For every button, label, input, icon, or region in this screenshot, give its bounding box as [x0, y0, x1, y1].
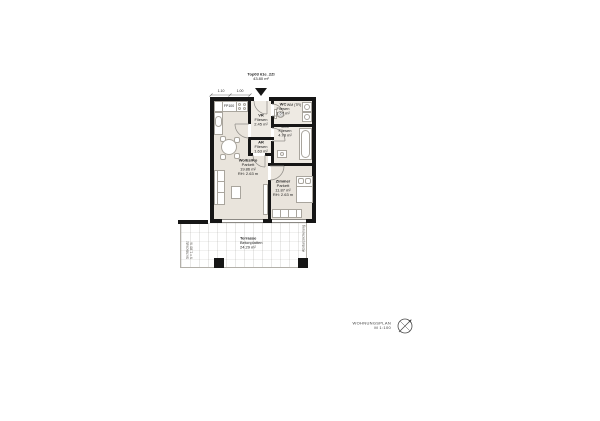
wall-right	[312, 97, 316, 223]
terrace-privacy-wall	[178, 220, 208, 224]
terrace-edge-bottom	[180, 267, 307, 268]
sofa-backrest-line	[217, 171, 218, 204]
wardrobe	[272, 209, 302, 218]
plan-title-area: 43.80 m²	[247, 77, 274, 82]
kitchen-counter-divider	[222, 101, 223, 112]
legend-scale: M 1:100	[352, 326, 391, 331]
floor-plan-canvas: Top03 61e_2Zi 43.80 m² 1.10 1.00 FP100	[0, 0, 600, 421]
room-label-zimmer: Zimmer Parkett 11.87 m² RH: 2.63 m	[273, 179, 293, 197]
terrace-edge-left	[180, 223, 181, 268]
cooktop-burner-icon	[238, 107, 241, 110]
annotation-line: Absturzsicherung	[302, 225, 306, 252]
room-area: 2.45 m²	[254, 122, 268, 127]
kitchen-unit-label: FP100	[224, 104, 234, 109]
sideboard	[263, 184, 268, 215]
dimension-label-1: 1.10	[218, 89, 225, 94]
room-height: RH: 2.63 m	[273, 193, 293, 198]
dining-chair	[220, 154, 226, 160]
sliding-door-zimmer	[272, 219, 306, 223]
wardrobe-divider	[280, 209, 281, 218]
kitchen-counter-divider	[236, 101, 237, 112]
wall-vr-left-upper	[248, 101, 251, 124]
bed-blanket-line	[297, 186, 312, 187]
room-area: 4.78 m²	[278, 133, 292, 138]
wall-bad-zimmer-divider	[268, 163, 316, 166]
wc-appliance-label: WM (TR)	[287, 103, 301, 108]
sliding-door-living	[222, 219, 263, 223]
sofa	[214, 170, 225, 205]
plan-title: Top03 61e_2Zi 43.80 m²	[247, 72, 274, 81]
cooktop-burner-icon	[243, 103, 246, 106]
room-area: 1.67 m²	[276, 111, 290, 116]
bathtub-inner	[301, 130, 310, 158]
room-label-terrasse: Terrasse Betonplatten 24.29 m²	[240, 236, 262, 250]
washbasin-drain-icon	[280, 152, 284, 156]
wardrobe-divider	[296, 209, 297, 218]
annotation-line: h = 1.80 m	[190, 241, 194, 259]
sofa-cushion-line	[218, 181, 224, 182]
room-area: 1.63 m²	[254, 149, 268, 154]
cooktop-burner-icon	[238, 103, 241, 106]
wall-bottom-c	[306, 219, 316, 223]
north-arrow-icon	[395, 316, 415, 336]
wall-top-right	[269, 97, 316, 101]
terrace-annotation-left: Sichtschutz h = 1.80 m	[186, 241, 194, 259]
entrance-arrow-icon	[255, 88, 267, 96]
terrace-annotation-right: Absturzsicherung	[302, 225, 306, 252]
dining-table	[221, 139, 237, 155]
washing-machine-door-icon	[304, 104, 310, 110]
wall-vr-right-a	[271, 101, 274, 104]
cooktop-burner-icon	[243, 107, 246, 110]
bed-pillow	[305, 178, 311, 184]
wall-bottom-a	[210, 219, 222, 223]
terrace-column-left	[214, 258, 224, 268]
dryer-door-icon	[304, 114, 310, 120]
wardrobe-divider	[288, 209, 289, 218]
bed-pillow	[298, 178, 304, 184]
legend: WOHNUNGSPLAN M 1:100	[352, 321, 391, 330]
sofa-cushion-line	[218, 192, 224, 193]
room-label-vr: VR Fliesen 2.45 m²	[254, 113, 268, 127]
coffee-table	[231, 186, 241, 199]
wall-ar-bottom-a	[248, 153, 253, 156]
wall-living-zimmer	[268, 180, 271, 223]
kitchen-sink-icon	[215, 116, 222, 127]
room-height: RH: 2.63 m	[238, 172, 258, 177]
room-label-ar: AR Fliesen 1.63 m²	[254, 140, 268, 154]
room-area: 24.29 m²	[240, 245, 262, 250]
room-label-bad: Bad Fliesen 4.78 m²	[278, 124, 292, 138]
dimension-label-2: 1.00	[237, 89, 244, 94]
room-label-wohnen: Wo/Es/Ko Parkett 19.86 m² RH: 2.63 m	[238, 158, 258, 176]
terrace-column-right	[298, 258, 308, 268]
